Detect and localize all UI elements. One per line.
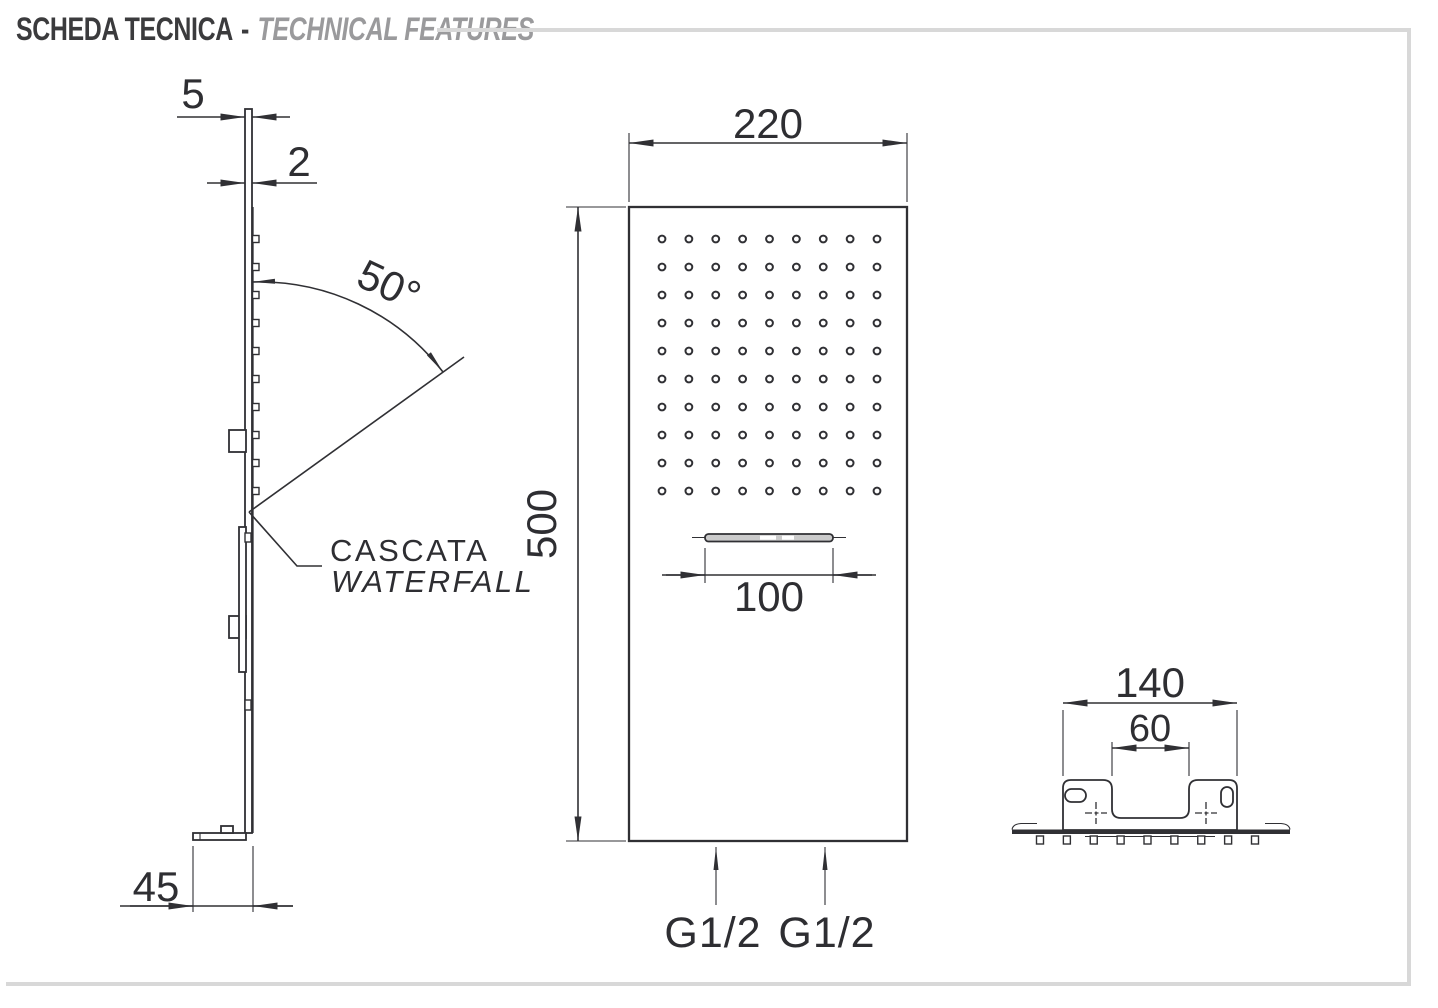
inlet-label-right: G1/2	[778, 909, 875, 957]
nozzle-dot	[739, 376, 746, 383]
slot-gap-2	[782, 536, 794, 540]
nozzle-dot	[739, 488, 746, 495]
nozzle-dot	[793, 348, 800, 355]
nozzle-dot	[685, 320, 692, 327]
side-nozzle-nub	[253, 292, 260, 299]
nozzle-dot	[847, 432, 854, 439]
nozzle-dot	[739, 348, 746, 355]
nozzle-dot	[685, 432, 692, 439]
dim2-label: 2	[287, 138, 310, 185]
top-nozzle-nub	[1198, 836, 1205, 844]
nozzle-dot	[659, 460, 666, 467]
nozzle-dot	[793, 264, 800, 271]
nozzle-dot	[847, 404, 854, 411]
nozzle-dot	[793, 488, 800, 495]
front-panel	[629, 207, 907, 841]
nozzle-dot	[847, 320, 854, 327]
side-strip-end-nub	[245, 700, 251, 710]
technical-sheet-page: SCHEDA TECNICA - TECHNICAL FEATURES	[0, 0, 1438, 1008]
nozzle-dot	[659, 320, 666, 327]
top-panel-end-right	[1265, 824, 1290, 830]
nozzle-dot	[793, 376, 800, 383]
nozzle-dot	[766, 320, 773, 327]
nozzle-dot	[820, 236, 827, 243]
nozzle-dot	[874, 488, 881, 495]
side-nozzle-nub	[253, 376, 260, 383]
bracket-slot-right	[1221, 787, 1233, 807]
angle-label: 50°	[350, 250, 427, 319]
nozzle-dot	[820, 320, 827, 327]
nozzle-dot	[820, 264, 827, 271]
nozzle-dot	[847, 460, 854, 467]
nozzle-dot	[685, 292, 692, 299]
side-foot	[193, 833, 246, 840]
top-nozzle-nub	[1063, 836, 1070, 844]
side-nozzle-nub	[253, 320, 260, 327]
side-nozzle-nub	[253, 264, 260, 271]
nozzle-dot	[685, 236, 692, 243]
nozzle-dot	[766, 432, 773, 439]
top-nozzle-nubs	[1037, 836, 1259, 844]
nozzle-dot	[793, 460, 800, 467]
nozzle-dot	[659, 348, 666, 355]
nozzle-dot	[659, 264, 666, 271]
dim500-label: 500	[518, 489, 565, 559]
nozzle-dot	[874, 264, 881, 271]
front-view: 220 500 100 G1/2 G1/2	[518, 100, 907, 957]
nozzle-dot	[820, 292, 827, 299]
nozzle-dot	[874, 236, 881, 243]
top-nozzle-nub	[1117, 836, 1124, 844]
nozzle-dot	[712, 432, 719, 439]
nozzle-dot	[712, 488, 719, 495]
top-panel-end-left	[1012, 824, 1037, 830]
inlet-label-left: G1/2	[664, 909, 761, 957]
top-nozzle-nub	[1037, 836, 1044, 844]
waterfall-label-it: CASCATA	[330, 533, 489, 568]
nozzle-dot	[712, 292, 719, 299]
nozzle-dot	[793, 236, 800, 243]
nozzle-dot	[766, 460, 773, 467]
top-nozzle-nub	[1144, 836, 1151, 844]
dim140-label: 140	[1115, 659, 1185, 706]
nozzle-dot	[685, 264, 692, 271]
top-nozzle-nub	[1090, 836, 1097, 844]
nozzle-dot	[874, 432, 881, 439]
nozzle-dot	[739, 236, 746, 243]
side-nozzle-nub	[253, 348, 260, 355]
nozzle-dot	[874, 376, 881, 383]
nozzle-dot	[685, 404, 692, 411]
slot-gap-1	[760, 536, 776, 540]
nozzle-dot	[766, 404, 773, 411]
side-view: 5 2 50° CASCATA WATERFALL 45	[120, 70, 534, 912]
nozzle-dot	[793, 292, 800, 299]
nozzle-dot	[874, 292, 881, 299]
side-nozzle-nub	[253, 460, 260, 467]
nozzle-dot	[685, 348, 692, 355]
nozzle-dot	[847, 488, 854, 495]
nozzle-dot	[766, 292, 773, 299]
technical-drawing: 5 2 50° CASCATA WATERFALL 45	[0, 0, 1438, 1008]
side-nozzle-nub	[253, 236, 260, 243]
nozzle-dot	[712, 404, 719, 411]
nozzle-dot	[847, 348, 854, 355]
nozzle-dot	[739, 264, 746, 271]
nozzle-dot	[712, 348, 719, 355]
nozzle-dot	[739, 320, 746, 327]
side-waterfall-nub	[245, 533, 251, 542]
dim220-label: 220	[733, 100, 803, 147]
angle-ray	[249, 357, 464, 512]
dim5-label: 5	[181, 70, 204, 117]
nozzle-dot	[847, 236, 854, 243]
nozzle-dot	[766, 264, 773, 271]
nozzle-dot	[659, 292, 666, 299]
top-nozzle-nub	[1171, 836, 1178, 844]
nozzle-dot	[820, 376, 827, 383]
nozzle-dot	[820, 348, 827, 355]
nozzle-dot	[659, 432, 666, 439]
nozzle-dot	[793, 404, 800, 411]
nozzle-dot	[685, 488, 692, 495]
side-nozzle-nub	[253, 404, 260, 411]
nozzle-dot	[712, 236, 719, 243]
dim100-label: 100	[734, 573, 804, 620]
nozzle-dot	[874, 404, 881, 411]
side-nozzle-nub	[253, 432, 260, 439]
nozzle-dot	[659, 376, 666, 383]
nozzle-dot	[659, 404, 666, 411]
nozzle-dot	[820, 488, 827, 495]
nozzle-dot	[766, 348, 773, 355]
nozzle-dot	[766, 376, 773, 383]
nozzle-dot	[712, 320, 719, 327]
side-nozzle-nub	[253, 488, 260, 495]
nozzle-dot	[874, 320, 881, 327]
nozzle-dot	[712, 264, 719, 271]
side-foot-bump	[221, 826, 233, 833]
nozzle-dot	[820, 404, 827, 411]
nozzle-dot	[766, 236, 773, 243]
nozzle-dot	[820, 432, 827, 439]
side-panel	[245, 109, 252, 833]
nozzle-dot	[739, 432, 746, 439]
nozzle-dot	[712, 376, 719, 383]
nozzle-dot	[874, 460, 881, 467]
bracket-slot-left	[1065, 789, 1086, 802]
nozzle-dot	[659, 488, 666, 495]
dim60-label: 60	[1129, 708, 1171, 750]
nozzle-dot	[793, 432, 800, 439]
nozzle-dot	[793, 320, 800, 327]
nozzle-dot	[766, 488, 773, 495]
nozzle-dot	[847, 264, 854, 271]
nozzle-dot	[685, 460, 692, 467]
nozzle-dot	[847, 376, 854, 383]
top-view: 140 60	[1012, 659, 1290, 844]
side-bracket-upper	[229, 430, 246, 452]
nozzle-dot	[874, 348, 881, 355]
nozzle-dot	[659, 236, 666, 243]
nozzle-dot	[739, 292, 746, 299]
waterfall-leader	[249, 512, 322, 566]
dim45-label: 45	[133, 863, 180, 910]
waterfall-label-en: WATERFALL	[331, 564, 534, 599]
nozzle-dot	[685, 376, 692, 383]
top-nozzle-nub	[1225, 836, 1232, 844]
nozzle-dot	[739, 404, 746, 411]
nozzle-dot	[739, 460, 746, 467]
nozzle-dot	[847, 292, 854, 299]
side-waterfall-strip	[239, 527, 246, 672]
bracket-outline	[1063, 780, 1237, 830]
top-nozzle-nub	[1252, 836, 1259, 844]
nozzle-dot	[820, 460, 827, 467]
nozzle-dot	[712, 460, 719, 467]
